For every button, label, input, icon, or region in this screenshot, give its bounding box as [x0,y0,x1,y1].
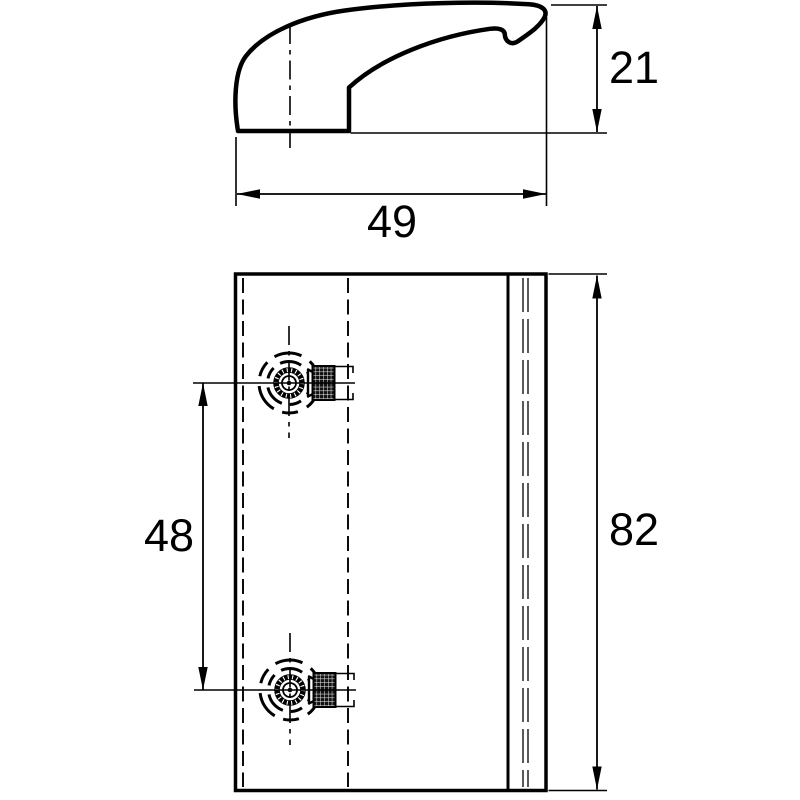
dim-label-82: 82 [609,504,659,555]
arrow-up-icon [198,383,207,406]
dim-label-48: 48 [144,510,194,561]
profile-view [235,3,607,148]
drawing-canvas: 21 49 48 82 [0,0,800,800]
dim-label-49: 49 [367,196,417,247]
arrow-up-icon [592,276,601,299]
dimension-profile-height: 21 [551,5,659,132]
arrow-down-icon [592,767,601,790]
arrow-up-icon [592,6,601,29]
front-view [193,274,546,791]
arrow-down-icon [592,109,601,132]
dimension-hole-spacing: 48 [144,383,208,690]
screw-top [193,326,355,438]
arrow-down-icon [198,667,207,690]
plate-outline [236,274,547,791]
technical-drawing: 21 49 48 82 [0,0,800,800]
dim-label-21: 21 [609,42,659,93]
screw-bottom [194,633,356,745]
handle-profile-outline [235,3,545,131]
dimension-plate-height: 82 [549,274,660,791]
arrow-left-icon [237,189,260,199]
arrow-right-icon [523,189,546,199]
